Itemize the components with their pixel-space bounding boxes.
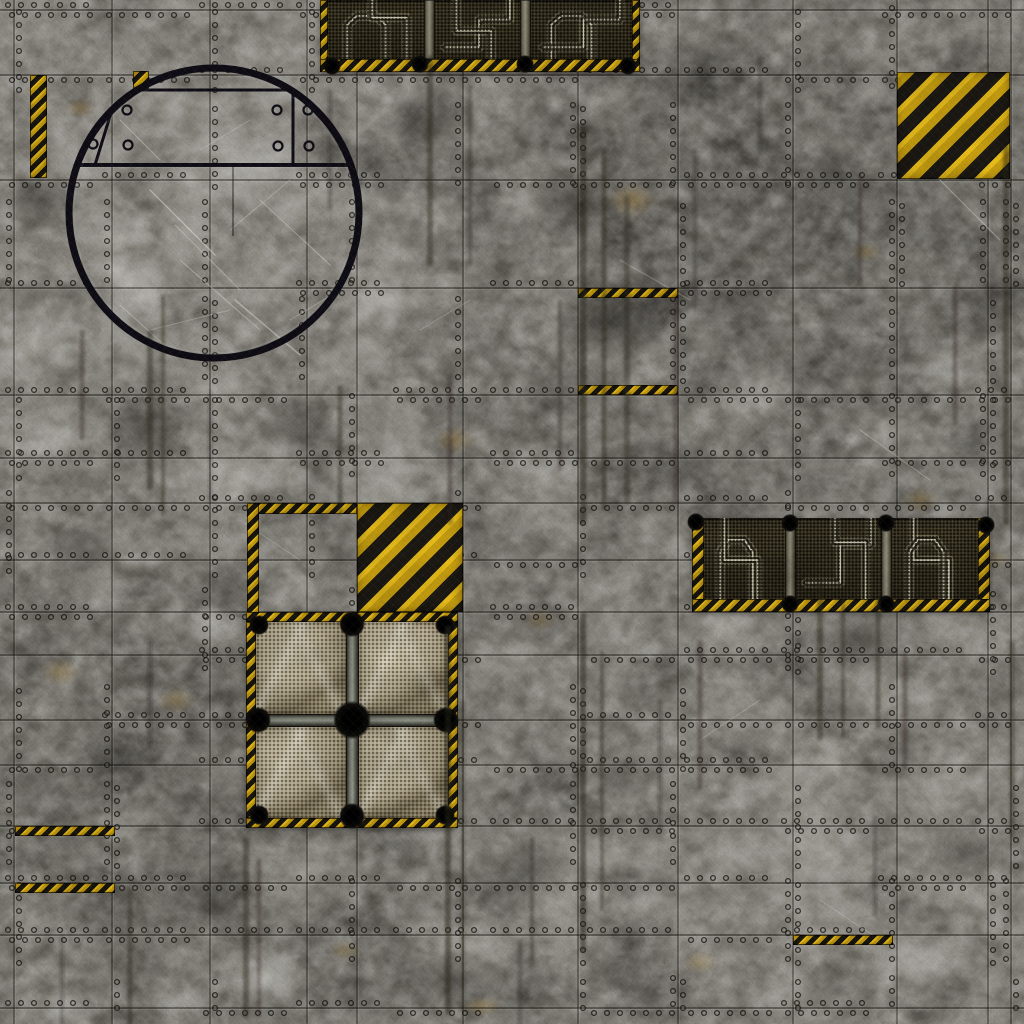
rivet [459, 819, 464, 824]
rivet [671, 116, 676, 121]
rivet [456, 517, 461, 522]
rivet [239, 68, 244, 73]
rivet [411, 658, 416, 663]
rivet [353, 461, 358, 466]
rivet [796, 631, 801, 636]
rivet [256, 398, 261, 403]
rivet [1006, 13, 1011, 18]
rivet [890, 213, 895, 218]
rivet [49, 506, 54, 511]
rivet [796, 812, 801, 817]
rivet [256, 886, 261, 891]
rivet [896, 506, 901, 511]
pipe-d [372, 0, 407, 59]
rivet [297, 928, 302, 933]
rivet [890, 349, 895, 354]
rivet [689, 658, 694, 663]
rivet [19, 928, 24, 933]
rivet [350, 879, 355, 884]
rivet [105, 278, 110, 283]
rivet [961, 723, 966, 728]
rivet [592, 461, 597, 466]
rivet [715, 938, 720, 943]
rivet [349, 876, 354, 881]
rivet [17, 689, 22, 694]
rivet [879, 819, 884, 824]
rivet [754, 1011, 759, 1016]
rivet [754, 291, 759, 296]
rivet [129, 553, 134, 558]
rivet [23, 615, 28, 620]
rivet [948, 506, 953, 511]
rivet [864, 506, 869, 511]
rivet [671, 103, 676, 108]
rivet [796, 864, 801, 869]
rivet [847, 819, 852, 824]
pipe-c [724, 518, 757, 599]
rivet [398, 506, 403, 511]
rivet [685, 496, 690, 501]
vent-hazard-right [978, 518, 990, 612]
rivet [581, 185, 586, 190]
rivet [909, 13, 914, 18]
rivet [681, 993, 686, 998]
rivet [446, 553, 451, 558]
rivet [456, 297, 461, 302]
rivet [935, 78, 940, 83]
rivet [17, 922, 22, 927]
rivet [366, 658, 371, 663]
light-worn-patch [55, 557, 145, 627]
rivet [991, 424, 996, 429]
rivet [681, 379, 686, 384]
rivet [243, 506, 248, 511]
rivet [890, 944, 895, 949]
rivet [812, 78, 817, 83]
grime-drip-streak [658, 700, 662, 830]
rivet [860, 553, 865, 558]
rivet [547, 78, 552, 83]
rivet [62, 461, 67, 466]
rivet [993, 461, 998, 466]
grime-drip-streak [558, 300, 562, 470]
rivet [796, 657, 801, 662]
rivet [508, 768, 513, 773]
rivet [314, 768, 319, 773]
rivet [796, 786, 801, 791]
rivet [981, 407, 986, 412]
rivet [670, 183, 675, 188]
rivet [204, 723, 209, 728]
rivet [980, 563, 985, 568]
rivet [640, 758, 645, 763]
rivet [767, 1011, 772, 1016]
rivet [989, 713, 994, 718]
rivet [58, 281, 63, 286]
rivet [569, 281, 574, 286]
rivet [980, 183, 985, 188]
rivet [851, 658, 856, 663]
rivet [17, 36, 22, 41]
rivet [476, 13, 481, 18]
rivet [213, 508, 218, 513]
rivet [133, 938, 138, 943]
fan-edge-bolt [432, 706, 461, 735]
rivet [327, 658, 332, 663]
fan-mesh-cell [359, 727, 449, 819]
rivet [200, 68, 205, 73]
rivet [521, 563, 526, 568]
pipe-a [909, 540, 943, 599]
rivet [84, 3, 89, 8]
rivet [890, 310, 895, 315]
rivet [851, 1011, 856, 1016]
rivet [796, 424, 801, 429]
rivet [366, 291, 371, 296]
rivet [657, 658, 662, 663]
hazard-strip-top-left-vertical [30, 75, 47, 178]
rivet [252, 68, 257, 73]
rivet [890, 763, 895, 768]
rivet [530, 605, 535, 610]
rivet [698, 553, 703, 558]
rivet [314, 291, 319, 296]
rivet [476, 506, 481, 511]
rivet [1006, 829, 1011, 834]
rivet [213, 146, 218, 151]
rivet [349, 173, 354, 178]
rivet [631, 13, 636, 18]
rivet [36, 829, 41, 834]
rivet [252, 928, 257, 933]
rivet [375, 1001, 380, 1006]
rivet [922, 78, 927, 83]
rivet [786, 588, 791, 593]
rivet [504, 605, 509, 610]
rivet [107, 506, 112, 511]
rivet [495, 886, 500, 891]
rivet [702, 398, 707, 403]
rivet [905, 648, 910, 653]
rivet [786, 944, 791, 949]
rivet [456, 323, 461, 328]
rivet [133, 398, 138, 403]
rivet [7, 569, 12, 574]
rivet [681, 1006, 686, 1011]
rivet [252, 758, 257, 763]
grime-drip-streak [147, 330, 153, 490]
rivet [796, 476, 801, 481]
scratch-mark [150, 190, 215, 255]
rivet [36, 78, 41, 83]
rivet [796, 935, 801, 940]
rivet [398, 723, 403, 728]
rivet [991, 618, 996, 623]
rivet [890, 297, 895, 302]
rivet [821, 648, 826, 653]
vent-hazard-left [692, 518, 704, 612]
rivet [666, 758, 671, 763]
rivet [860, 648, 865, 653]
rivet [88, 829, 93, 834]
rivet [892, 173, 897, 178]
rivet [991, 340, 996, 345]
rivet [671, 821, 676, 826]
rivet [571, 168, 576, 173]
rivet [239, 819, 244, 824]
rivet [300, 336, 305, 341]
rivet [23, 768, 28, 773]
rivet [581, 172, 586, 177]
rivet [670, 1011, 675, 1016]
rivet [327, 506, 332, 511]
rivet [767, 768, 772, 773]
rust-stain [676, 946, 724, 978]
rivet [450, 506, 455, 511]
rivet [631, 658, 636, 663]
rivet [631, 461, 636, 466]
rivet [922, 506, 927, 511]
rivet [350, 226, 355, 231]
rivet [825, 1011, 830, 1016]
rivet [350, 601, 355, 606]
rivet [310, 75, 315, 80]
rivet [463, 723, 468, 728]
rivet [581, 573, 586, 578]
rivet [724, 876, 729, 881]
rivet [181, 713, 186, 718]
rivet [203, 601, 208, 606]
rivet [601, 68, 606, 73]
pipe-c [724, 518, 757, 599]
rivet [644, 13, 649, 18]
rivet [991, 301, 996, 306]
rivet [168, 713, 173, 718]
rivet [795, 1001, 800, 1006]
rivet [456, 375, 461, 380]
rivet [702, 768, 707, 773]
rivet [724, 68, 729, 73]
rivet [786, 653, 791, 658]
rivet [88, 183, 93, 188]
rivet [213, 1006, 218, 1011]
rivet [961, 398, 966, 403]
rivet [17, 398, 22, 403]
grime-drip-streak [445, 625, 451, 1015]
rivet [681, 366, 686, 371]
rivet [763, 876, 768, 881]
rivet [243, 1011, 248, 1016]
light-worn-patch [870, 915, 980, 995]
pipe-c [456, 0, 491, 59]
rivet [581, 120, 586, 125]
rivet [146, 78, 151, 83]
rivet [737, 819, 742, 824]
rivet [107, 723, 112, 728]
rivet [825, 658, 830, 663]
fan-hazard-top [246, 612, 458, 622]
rivet [530, 281, 535, 286]
rivet [571, 129, 576, 134]
rivet [19, 388, 24, 393]
rivet [670, 658, 675, 663]
fan-mesh-dots [359, 622, 449, 714]
rivet [349, 713, 354, 718]
rivet [146, 938, 151, 943]
rivet [750, 496, 755, 501]
rivet [203, 278, 208, 283]
rivet [991, 883, 996, 888]
rivet [213, 980, 218, 985]
rivet [129, 173, 134, 178]
rivet [336, 281, 341, 286]
rivet [890, 265, 895, 270]
rivet [213, 68, 218, 73]
rivet [890, 711, 895, 716]
rivet [133, 886, 138, 891]
rivet [605, 13, 610, 18]
rivet [671, 847, 676, 852]
rivet [993, 563, 998, 568]
rivet [581, 1006, 586, 1011]
rivet [88, 506, 93, 511]
light-noise-rect [0, 0, 1024, 1024]
rivet [741, 291, 746, 296]
rivet [105, 821, 110, 826]
rivet [45, 876, 50, 881]
vent-bolt-blob [777, 510, 802, 535]
rivet [446, 928, 451, 933]
rivet [411, 398, 416, 403]
rust-stain [844, 238, 888, 266]
rivet [17, 62, 22, 67]
rivet [213, 534, 218, 539]
rivet [350, 265, 355, 270]
rivet [981, 200, 986, 205]
rivet [715, 658, 720, 663]
rivet [1004, 278, 1009, 283]
rivet [890, 226, 895, 231]
rivet [981, 226, 986, 231]
rivet [763, 605, 768, 610]
rivet [989, 876, 994, 881]
rivet [724, 451, 729, 456]
vent-frame-post [424, 0, 435, 59]
rivet [896, 563, 901, 568]
rivet [301, 461, 306, 466]
rivet [948, 886, 953, 891]
rivet [521, 183, 526, 188]
rivet [49, 78, 54, 83]
rivet [10, 938, 15, 943]
rivet [883, 78, 888, 83]
rivet [159, 13, 164, 18]
rivet [362, 281, 367, 286]
rivet [918, 648, 923, 653]
rivet [948, 563, 953, 568]
rivet [204, 886, 209, 891]
top-grime-rect [0, 0, 1024, 1024]
rivet [698, 451, 703, 456]
rivet [278, 496, 283, 501]
rivet [327, 291, 332, 296]
rivet [115, 437, 120, 442]
rivet [239, 928, 244, 933]
rivet [890, 45, 895, 50]
rivet [796, 450, 801, 455]
rivet [463, 78, 468, 83]
rivet [685, 451, 690, 456]
rivet [571, 795, 576, 800]
rivet [825, 78, 830, 83]
rivet [685, 553, 690, 558]
rivet [909, 461, 914, 466]
grain-rect [0, 0, 1024, 1024]
rivet [105, 265, 110, 270]
rivet [456, 892, 461, 897]
rivet [961, 886, 966, 891]
rivet [269, 398, 274, 403]
rivet [689, 183, 694, 188]
rivet [350, 892, 355, 897]
rivet [782, 553, 787, 558]
rivet [715, 398, 720, 403]
rivet [737, 876, 742, 881]
rivet [213, 353, 218, 358]
rivet [581, 689, 586, 694]
rivet [976, 605, 981, 610]
grime-drip-streak [338, 385, 343, 515]
rivet [890, 433, 895, 438]
pipe-d [372, 0, 407, 59]
rivet [360, 592, 365, 597]
rivet [909, 78, 914, 83]
rivet [715, 1011, 720, 1016]
rivet [711, 68, 716, 73]
rivet [495, 78, 500, 83]
rivet [49, 886, 54, 891]
rivet [168, 928, 173, 933]
dark-stain [440, 820, 600, 940]
rivet [750, 173, 755, 178]
rivet [534, 768, 539, 773]
rivet [786, 666, 791, 671]
rivet [327, 615, 332, 620]
dark-noise-rect [0, 0, 1024, 1024]
rivet [618, 829, 623, 834]
rivet [737, 758, 742, 763]
rivet [737, 281, 742, 286]
rivet [159, 78, 164, 83]
rivet [350, 653, 355, 658]
rivet [424, 1011, 429, 1016]
rivet [681, 314, 686, 319]
rivet [592, 829, 597, 834]
rivet [922, 461, 927, 466]
rivet [476, 658, 481, 663]
rivet [890, 989, 895, 994]
rivet [883, 13, 888, 18]
rivet [58, 605, 63, 610]
rivet [115, 980, 120, 985]
rivet [476, 886, 481, 891]
rivet [834, 605, 839, 610]
rivet [300, 362, 305, 367]
rivet [424, 886, 429, 891]
grime-drip-streak [518, 940, 522, 1024]
rivet [517, 451, 522, 456]
rivet [19, 3, 24, 8]
